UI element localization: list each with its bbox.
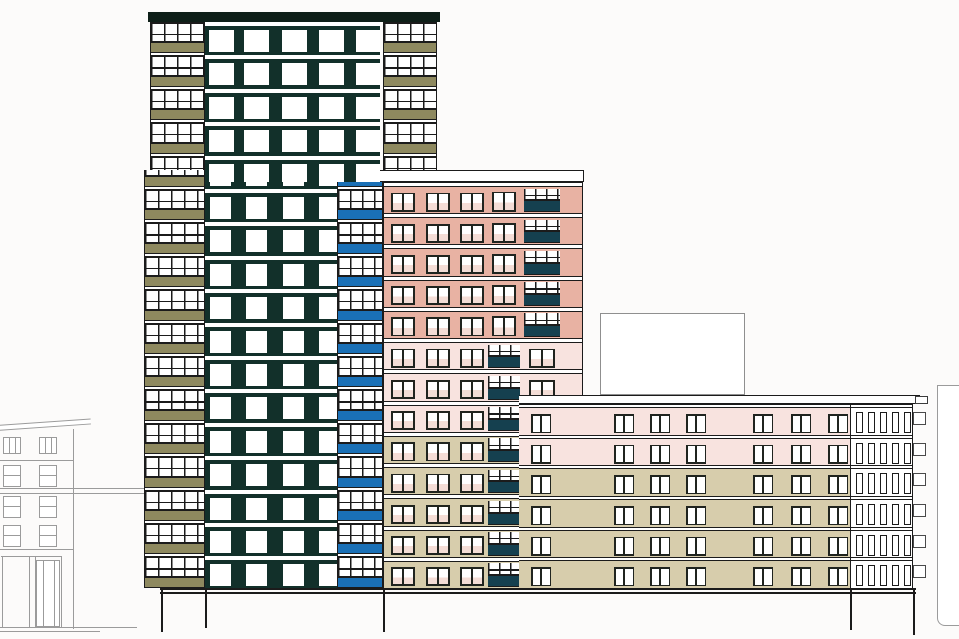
balcony-floor: [145, 456, 204, 489]
floor-slab-band: [851, 405, 913, 408]
window-pane: [494, 318, 503, 334]
midrise-window: [460, 193, 484, 212]
window-pane: [393, 475, 402, 490]
window-pane: [428, 444, 437, 459]
window-pane: [393, 194, 402, 209]
floor-slab-band: [851, 528, 913, 531]
midrise-window: [391, 255, 415, 274]
context-floor-line: [1, 556, 62, 557]
window-pane: [839, 538, 847, 554]
midrise-window: [460, 536, 484, 555]
balcony-glazing: [338, 358, 383, 377]
midrise-window: [391, 349, 415, 368]
tower-window: [319, 498, 337, 520]
core-window: [868, 443, 875, 464]
balcony-handrail: [384, 168, 437, 169]
core-window: [880, 504, 887, 525]
balcony-spandrel: [145, 478, 204, 488]
balcony-glazing: [145, 525, 205, 544]
tower-body-upper: [205, 22, 380, 182]
midrise-window: [460, 317, 484, 336]
window-pane: [439, 194, 448, 209]
window-pane: [462, 538, 471, 553]
balcony-handrail: [145, 201, 205, 202]
midrise-balcony-glazing: [524, 220, 560, 233]
rooftop-box-outline: [600, 313, 745, 395]
core-window: [880, 412, 887, 433]
wing-window: [614, 567, 634, 586]
window-pane: [404, 288, 413, 303]
window-pane: [661, 477, 669, 493]
window-pane: [830, 569, 838, 585]
midrise-balcony-spandrel: [524, 295, 560, 306]
window-pane: [393, 507, 402, 522]
floor-slab-band: [851, 436, 913, 439]
window-pane: [661, 446, 669, 462]
balcony-floor: [338, 289, 382, 322]
balcony-glazing: [338, 525, 383, 544]
window-pane: [473, 444, 482, 459]
balcony-handrail: [384, 34, 437, 35]
balcony-spandrel: [338, 210, 382, 220]
window-pane: [393, 257, 402, 272]
window-pane: [404, 319, 413, 334]
context-window: [3, 525, 21, 547]
window-pane: [764, 569, 772, 585]
context-ground-line: [0, 631, 100, 632]
balcony-floor: [145, 289, 204, 322]
window-pane: [393, 288, 402, 303]
floor-slab-band: [851, 558, 913, 561]
window-pane: [505, 193, 514, 209]
balcony-handrail: [338, 335, 383, 336]
window-pane: [697, 477, 705, 493]
wing-window: [791, 475, 811, 494]
wing-window: [686, 475, 706, 494]
core-window: [892, 565, 899, 586]
balcony-spandrel: [151, 43, 204, 53]
window-pane: [533, 538, 541, 554]
wing-window: [753, 567, 773, 586]
window-pane: [839, 569, 847, 585]
context-ground-line: [0, 627, 137, 628]
tower-window: [246, 364, 267, 386]
midrise-window: [391, 193, 415, 212]
window-pane: [616, 538, 624, 554]
balcony-spandrel: [145, 311, 204, 321]
window-pane: [793, 477, 801, 493]
balcony-spandrel: [145, 511, 204, 521]
context-attic-window: [39, 437, 57, 454]
wing-window: [828, 567, 848, 586]
window-pane: [652, 538, 660, 554]
window-pane: [542, 508, 550, 524]
tower-window: [283, 498, 304, 520]
context-window: [39, 525, 57, 547]
tower-window: [210, 364, 231, 386]
tower-window: [319, 531, 337, 553]
midrise-balcony-spandrel: [524, 232, 560, 243]
wing-stair-core: [850, 528, 913, 558]
facade-base-line: [160, 592, 916, 594]
window-pane: [533, 477, 541, 493]
window-pane: [543, 350, 553, 365]
midrise-balcony-spandrel: [488, 514, 520, 525]
balcony-handrail: [145, 234, 205, 235]
window-pane: [616, 446, 624, 462]
window-pane: [428, 288, 437, 303]
midrise-window: [391, 411, 415, 430]
midrise-balcony-spandrel: [488, 482, 520, 493]
balcony-glazing: [338, 325, 383, 344]
floor-slab-band: [384, 339, 582, 343]
balcony-glazing: [145, 258, 205, 277]
midrise-balcony-spandrel: [488, 357, 520, 368]
tower-window: [210, 230, 231, 252]
wing-roof-end: [915, 396, 928, 404]
balcony-spandrel: [145, 411, 204, 421]
midrise-window: [492, 285, 516, 305]
wing-window: [614, 445, 634, 464]
facade-base-line: [160, 588, 916, 590]
tower-window: [283, 331, 304, 353]
balcony-handrail: [151, 34, 205, 35]
window-pane: [625, 477, 633, 493]
balcony-glazing: [384, 91, 437, 110]
tower-window: [282, 30, 307, 52]
midrise-window: [391, 286, 415, 305]
window-pane: [473, 350, 482, 365]
core-window: [904, 565, 911, 586]
window-pane: [428, 538, 437, 553]
midrise-window: [460, 255, 484, 274]
wing-window: [531, 537, 551, 556]
core-window: [880, 443, 887, 464]
window-pane: [542, 477, 550, 493]
wing-window: [531, 506, 551, 525]
tower-roof-slab: [148, 12, 440, 22]
tower-window: [283, 297, 304, 319]
pilotis-column: [913, 590, 915, 635]
wing-window: [753, 445, 773, 464]
context-window-transom: [4, 535, 20, 536]
wing-window: [531, 445, 551, 464]
midrise-balcony-glazing: [488, 438, 520, 451]
balcony-handrail: [338, 468, 383, 469]
wing-window: [614, 414, 634, 433]
midrise-window: [460, 567, 484, 586]
balcony-glazing: [338, 425, 383, 444]
wing-window: [686, 414, 706, 433]
balcony-handrail: [488, 569, 520, 570]
wing-window: [531, 567, 551, 586]
window-pane: [839, 477, 847, 493]
midrise-balcony-glazing: [524, 313, 560, 326]
balcony-glazing: [338, 558, 383, 577]
tower-window: [209, 97, 234, 119]
wing-stair-core: [850, 497, 913, 527]
context-storefront-mullion: [2, 556, 3, 627]
core-window: [892, 504, 899, 525]
core-window: [880, 565, 887, 586]
balcony-spandrel: [384, 144, 436, 154]
midrise-window: [391, 380, 415, 399]
tower-slab-band: [205, 490, 337, 494]
wing-stair-core: [850, 558, 913, 588]
window-pane: [428, 194, 437, 209]
core-window: [856, 443, 863, 464]
midrise-balcony-glazing: [488, 501, 520, 514]
window-pane: [830, 477, 838, 493]
window-pane: [428, 350, 437, 365]
balcony-handrail: [524, 257, 560, 258]
balcony-floor: [151, 22, 204, 55]
midrise-balcony-spandrel: [488, 545, 520, 556]
balcony-handrail: [488, 445, 520, 446]
elevation-drawing: [0, 0, 959, 639]
window-pane: [462, 413, 471, 428]
tower-window: [210, 498, 231, 520]
balcony-handrail: [145, 335, 205, 336]
window-pane: [830, 446, 838, 462]
balcony-handrail: [145, 435, 205, 436]
tower-window: [283, 264, 304, 286]
balcony-spandrel: [145, 444, 204, 454]
window-pane: [462, 507, 471, 522]
tower-window: [319, 464, 337, 486]
balcony-glazing: [145, 170, 205, 177]
window-pane: [793, 538, 801, 554]
balcony-handrail: [524, 226, 560, 227]
context-window: [3, 465, 21, 487]
balcony-floor: [145, 323, 204, 356]
midrise-balcony-glazing: [524, 251, 560, 264]
tower-window: [319, 364, 337, 386]
tower-window: [244, 97, 269, 119]
window-pane: [439, 507, 448, 522]
balcony-floor: [338, 189, 382, 222]
midrise-floor: [384, 276, 582, 307]
balcony-handrail: [488, 476, 520, 477]
tower-window: [283, 397, 304, 419]
midrise-window: [391, 224, 415, 243]
wing-window: [828, 506, 848, 525]
tower-window: [246, 182, 267, 186]
balcony-handrail: [488, 507, 520, 508]
context-door-line: [43, 561, 44, 626]
balcony-floor: [151, 55, 204, 88]
window-pane: [830, 538, 838, 554]
tower-slab-band: [205, 222, 337, 226]
context-wall-edge: [73, 429, 74, 629]
balcony-floor: [145, 556, 204, 588]
midrise-window: [426, 442, 450, 461]
window-pane: [439, 538, 448, 553]
midrise-window: [492, 254, 516, 274]
wing-side-box: [913, 504, 926, 517]
tower-slab-band: [205, 55, 380, 59]
balcony-glazing: [145, 425, 205, 444]
window-pane: [652, 508, 660, 524]
context-window: [3, 496, 21, 518]
tower-slab-band: [205, 323, 337, 327]
balcony-spandrel: [338, 244, 382, 254]
tower-slab-band: [205, 456, 337, 460]
attic-mullion: [45, 438, 46, 453]
balcony-glazing: [384, 57, 437, 76]
window-pane: [625, 508, 633, 524]
balcony-floor: [151, 122, 204, 155]
balcony-glazing: [145, 391, 205, 410]
wing-window: [828, 537, 848, 556]
midrise-balcony-spandrel: [524, 201, 560, 212]
balcony-handrail: [145, 568, 205, 569]
window-pane: [494, 256, 503, 272]
tower-window: [319, 164, 344, 182]
midrise-balcony-glazing: [488, 345, 520, 358]
midrise-window: [426, 380, 450, 399]
window-pane: [625, 446, 633, 462]
balcony-floor: [338, 423, 382, 456]
core-window: [856, 412, 863, 433]
tower-window: [319, 297, 337, 319]
balcony-spandrel: [338, 544, 382, 554]
window-pane: [802, 508, 810, 524]
balcony-glazing: [145, 358, 205, 377]
balcony-floor: [145, 490, 204, 523]
wing-window: [614, 537, 634, 556]
window-pane: [439, 319, 448, 334]
midrise-floor: [384, 307, 582, 338]
window-pane: [764, 416, 772, 432]
wing-window: [686, 537, 706, 556]
context-window-transom: [4, 475, 20, 476]
balcony-handrail: [524, 195, 560, 196]
balcony-floor: [338, 182, 382, 189]
tower-window: [356, 97, 380, 119]
window-pane: [462, 444, 471, 459]
window-pane: [462, 288, 471, 303]
window-pane: [462, 350, 471, 365]
window-pane: [428, 382, 437, 397]
balcony-spandrel: [338, 411, 382, 421]
window-pane: [616, 508, 624, 524]
attic-mullion: [9, 438, 10, 453]
core-window: [892, 473, 899, 494]
window-pane: [393, 319, 402, 334]
tower-window: [282, 63, 307, 85]
wing-window: [791, 414, 811, 433]
window-pane: [697, 446, 705, 462]
window-pane: [428, 475, 437, 490]
balcony-spandrel: [145, 277, 204, 287]
balcony-spandrel: [145, 244, 204, 254]
window-pane: [661, 569, 669, 585]
window-pane: [688, 508, 696, 524]
balcony-glazing: [145, 325, 205, 344]
window-pane: [404, 194, 413, 209]
balcony-floor: [384, 156, 436, 170]
balcony-glazing: [145, 492, 205, 511]
balcony-handrail: [488, 382, 520, 383]
window-pane: [661, 508, 669, 524]
core-window: [892, 535, 899, 556]
tower-window: [244, 63, 269, 85]
core-window: [904, 473, 911, 494]
balcony-handrail: [338, 268, 383, 269]
floor-slab-band: [384, 370, 582, 374]
wing-floor: [519, 435, 912, 466]
wing-window: [650, 506, 670, 525]
floor-slab-band: [384, 245, 582, 249]
tower-window: [283, 197, 304, 219]
tower-slab-band: [205, 556, 337, 560]
balcony-floor: [338, 490, 382, 523]
window-pane: [439, 226, 448, 241]
window-pane: [428, 413, 437, 428]
floor-slab-band: [384, 308, 582, 312]
wing-window: [650, 414, 670, 433]
window-pane: [764, 446, 772, 462]
window-pane: [688, 569, 696, 585]
midrise-window: [426, 286, 450, 305]
midrise-window: [391, 505, 415, 524]
wing-window: [791, 506, 811, 525]
window-pane: [839, 508, 847, 524]
tower-window: [356, 63, 380, 85]
window-pane: [688, 446, 696, 462]
balcony-spandrel: [145, 344, 204, 354]
window-pane: [652, 477, 660, 493]
window-pane: [533, 569, 541, 585]
attic-mullion: [51, 438, 52, 453]
wing-stair-core: [850, 405, 913, 435]
tower-slab-band: [205, 156, 380, 160]
core-window: [868, 412, 875, 433]
window-pane: [697, 569, 705, 585]
tower-window: [356, 130, 380, 152]
window-pane: [393, 569, 402, 584]
midrise-window: [426, 474, 450, 493]
balcony-floor: [145, 222, 204, 255]
tower-window: [246, 297, 267, 319]
midrise-window: [426, 536, 450, 555]
context-window: [39, 496, 57, 518]
window-pane: [428, 226, 437, 241]
window-pane: [652, 416, 660, 432]
balcony-glazing: [145, 558, 205, 577]
midrise-window: [426, 193, 450, 212]
midrise-floor: [384, 338, 582, 369]
window-pane: [755, 446, 763, 462]
tower-window: [244, 30, 269, 52]
core-window: [868, 473, 875, 494]
wing-side-box: [913, 412, 926, 425]
tower-window: [244, 130, 269, 152]
core-window: [892, 443, 899, 464]
tower-window: [319, 30, 344, 52]
midrise-window: [391, 474, 415, 493]
tower-window: [246, 331, 267, 353]
balcony-spandrel: [338, 277, 382, 287]
tower-window: [283, 464, 304, 486]
midrise-window: [426, 317, 450, 336]
balcony-spandrel: [151, 110, 204, 120]
balcony-handrail: [338, 401, 383, 402]
midrise-floor: [384, 244, 582, 275]
window-pane: [533, 416, 541, 432]
window-pane: [462, 382, 471, 397]
